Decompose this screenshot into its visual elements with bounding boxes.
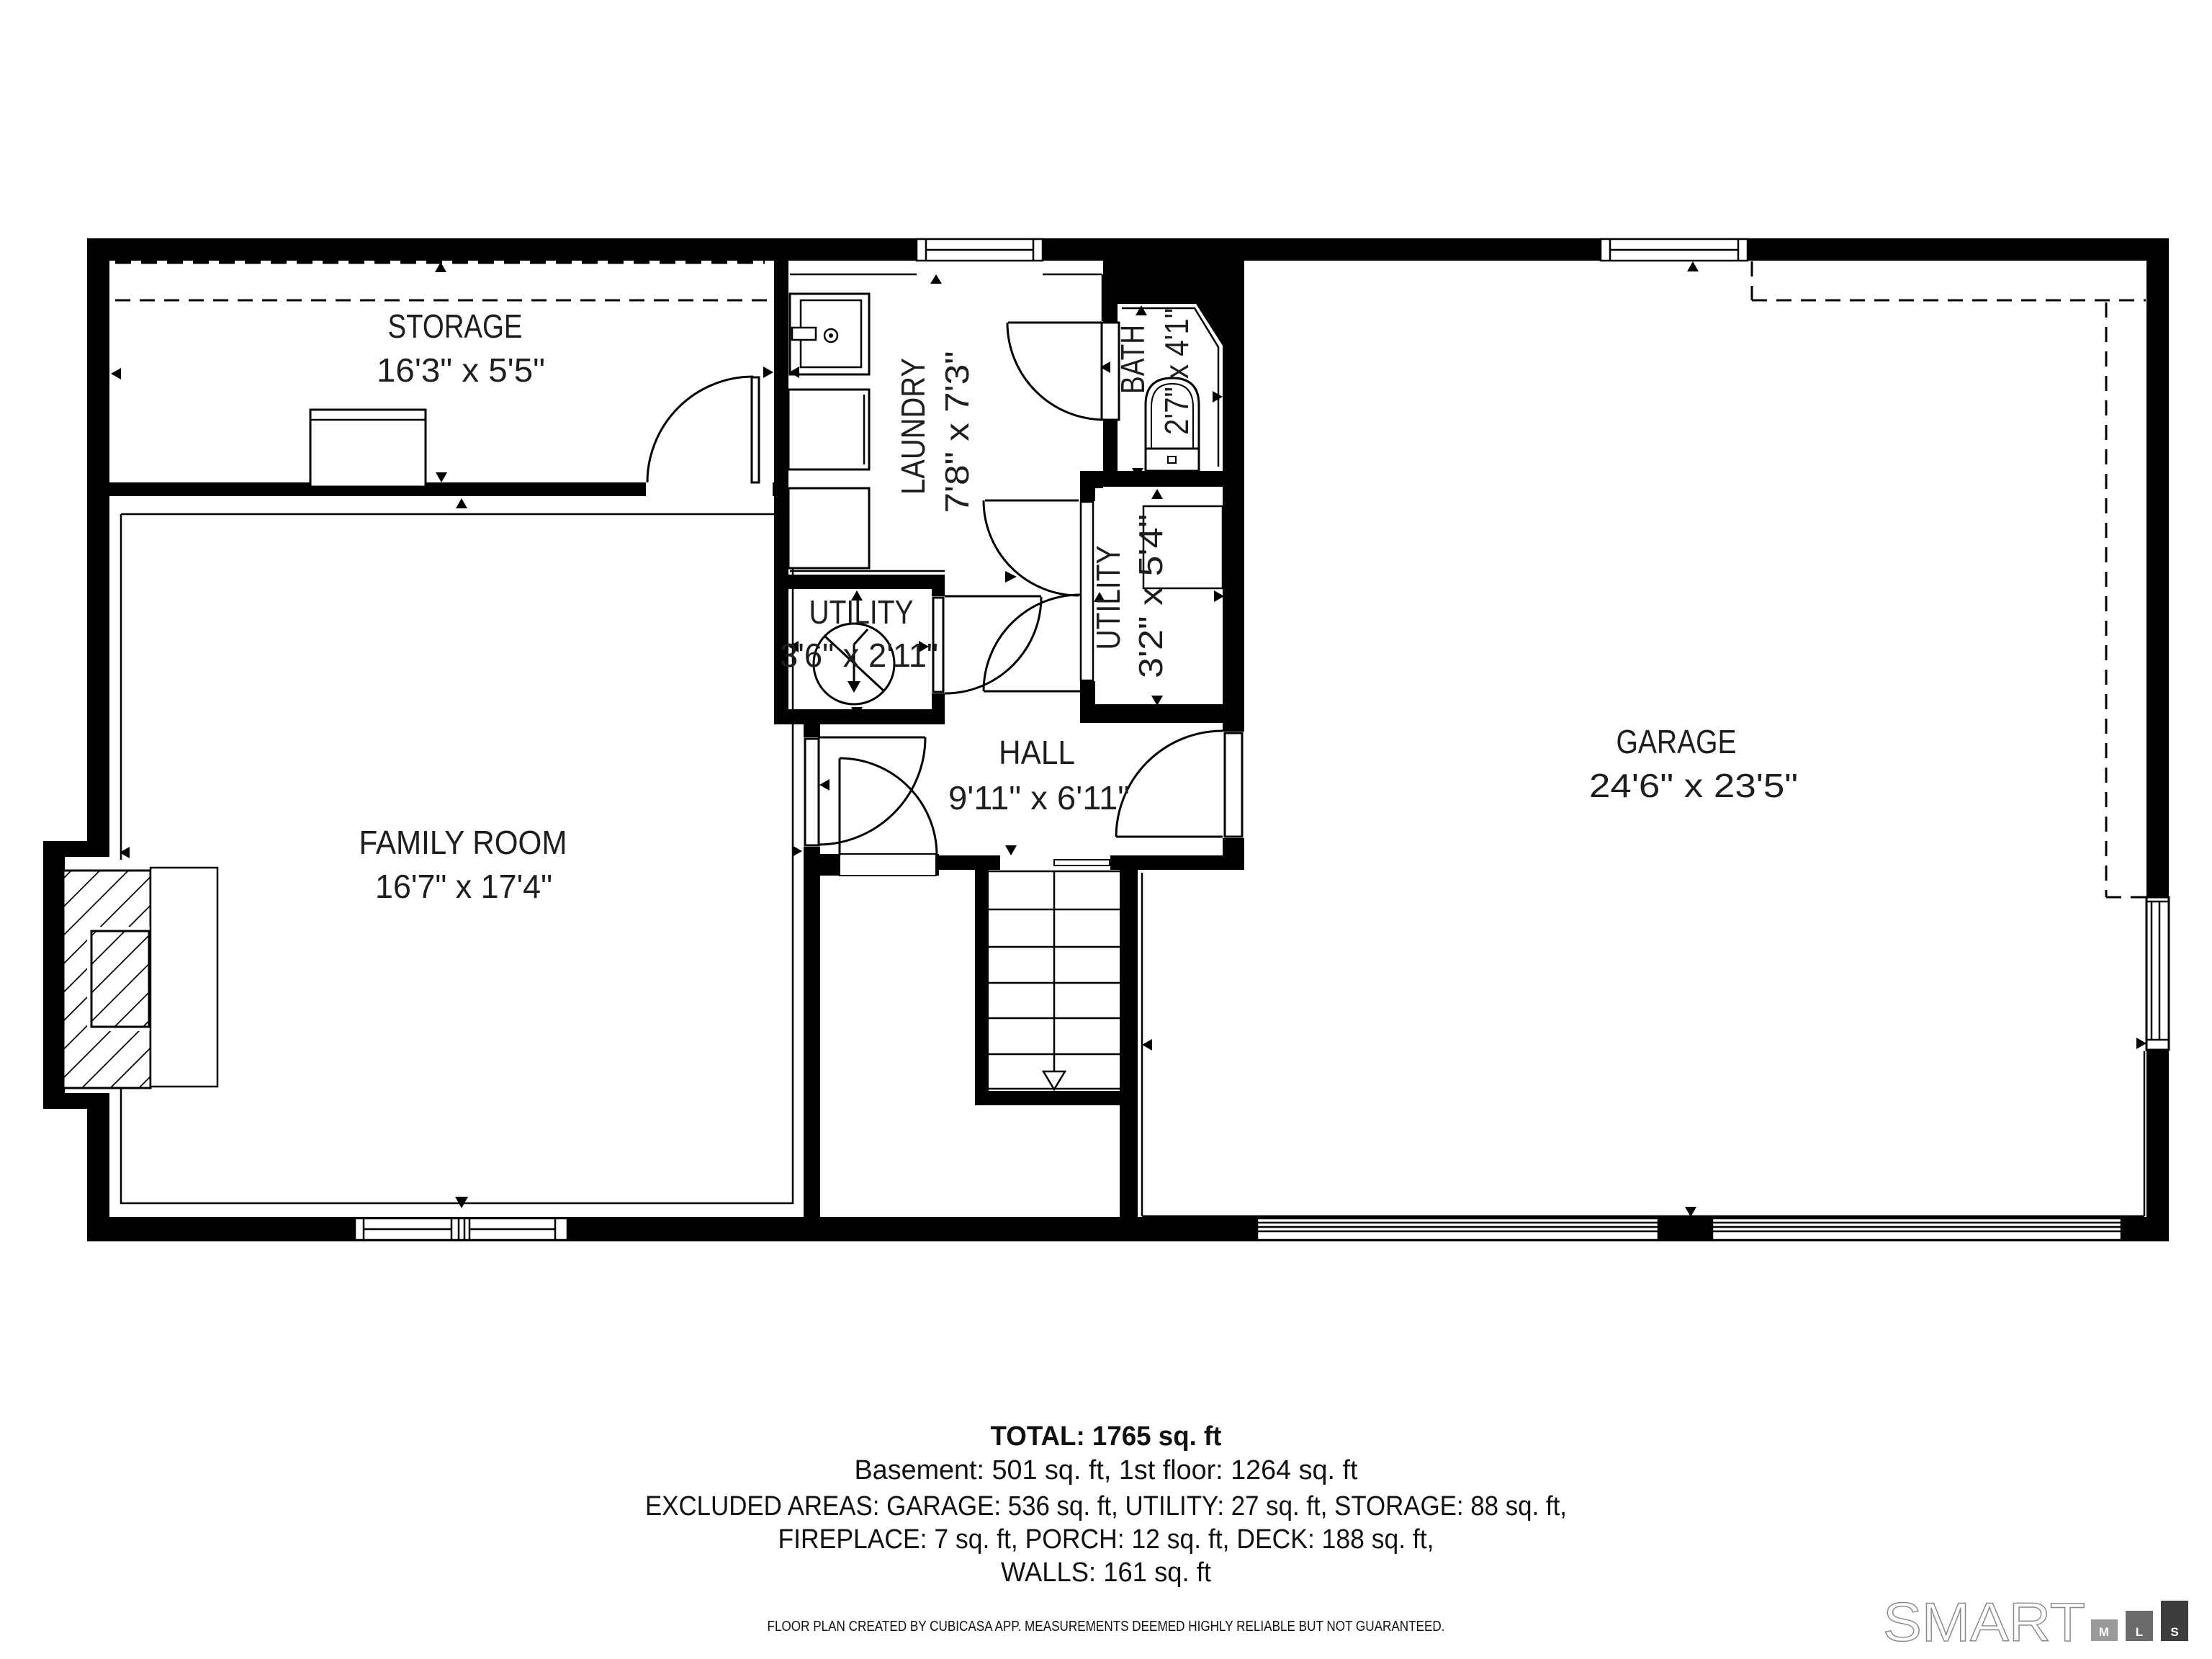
svg-text:FIREPLACE: 7 sq. ft, PORCH: 12: FIREPLACE: 7 sq. ft, PORCH: 12 sq. ft, D… [778, 1524, 1434, 1555]
svg-text:L: L [2136, 1625, 2143, 1639]
svg-text:24'6" x 23'5": 24'6" x 23'5" [1589, 767, 1798, 804]
svg-text:STORAGE: STORAGE [388, 307, 523, 345]
svg-text:UTILITY: UTILITY [1089, 546, 1127, 650]
svg-text:3'2" x 5'4": 3'2" x 5'4" [1132, 514, 1169, 678]
svg-text:Basement: 501 sq. ft, 1st floo: Basement: 501 sq. ft, 1st floor: 1264 sq… [855, 1455, 1358, 1485]
svg-text:LAUNDRY: LAUNDRY [894, 358, 932, 495]
svg-text:WALLS: 161 sq. ft: WALLS: 161 sq. ft [1001, 1557, 1211, 1588]
svg-text:FLOOR PLAN CREATED BY CUBICASA: FLOOR PLAN CREATED BY CUBICASA APP. MEAS… [768, 1618, 1445, 1635]
svg-text:EXCLUDED AREAS: GARAGE: 536 sq: EXCLUDED AREAS: GARAGE: 536 sq. ft, UTIL… [645, 1491, 1567, 1521]
svg-text:7'8" x 7'3": 7'8" x 7'3" [938, 351, 976, 513]
svg-text:GARAGE: GARAGE [1617, 723, 1737, 760]
svg-text:2'7" x 4'1": 2'7" x 4'1" [1158, 308, 1195, 435]
svg-text:UTILITY: UTILITY [809, 593, 914, 631]
svg-text:HALL: HALL [999, 734, 1075, 771]
svg-text:3'6" x 2'11": 3'6" x 2'11" [780, 637, 938, 674]
svg-text:16'3" x 5'5": 16'3" x 5'5" [377, 351, 545, 389]
svg-text:S: S [2170, 1625, 2178, 1639]
svg-text:TOTAL: 1765 sq. ft: TOTAL: 1765 sq. ft [991, 1421, 1222, 1452]
svg-text:M: M [2099, 1625, 2109, 1639]
svg-text:9'11" x 6'11": 9'11" x 6'11" [948, 779, 1130, 817]
svg-text:SMART: SMART [1883, 1592, 2085, 1653]
svg-text:BATH: BATH [1114, 325, 1151, 394]
svg-text:FAMILY ROOM: FAMILY ROOM [359, 824, 567, 861]
svg-text:16'7" x 17'4": 16'7" x 17'4" [375, 868, 552, 905]
